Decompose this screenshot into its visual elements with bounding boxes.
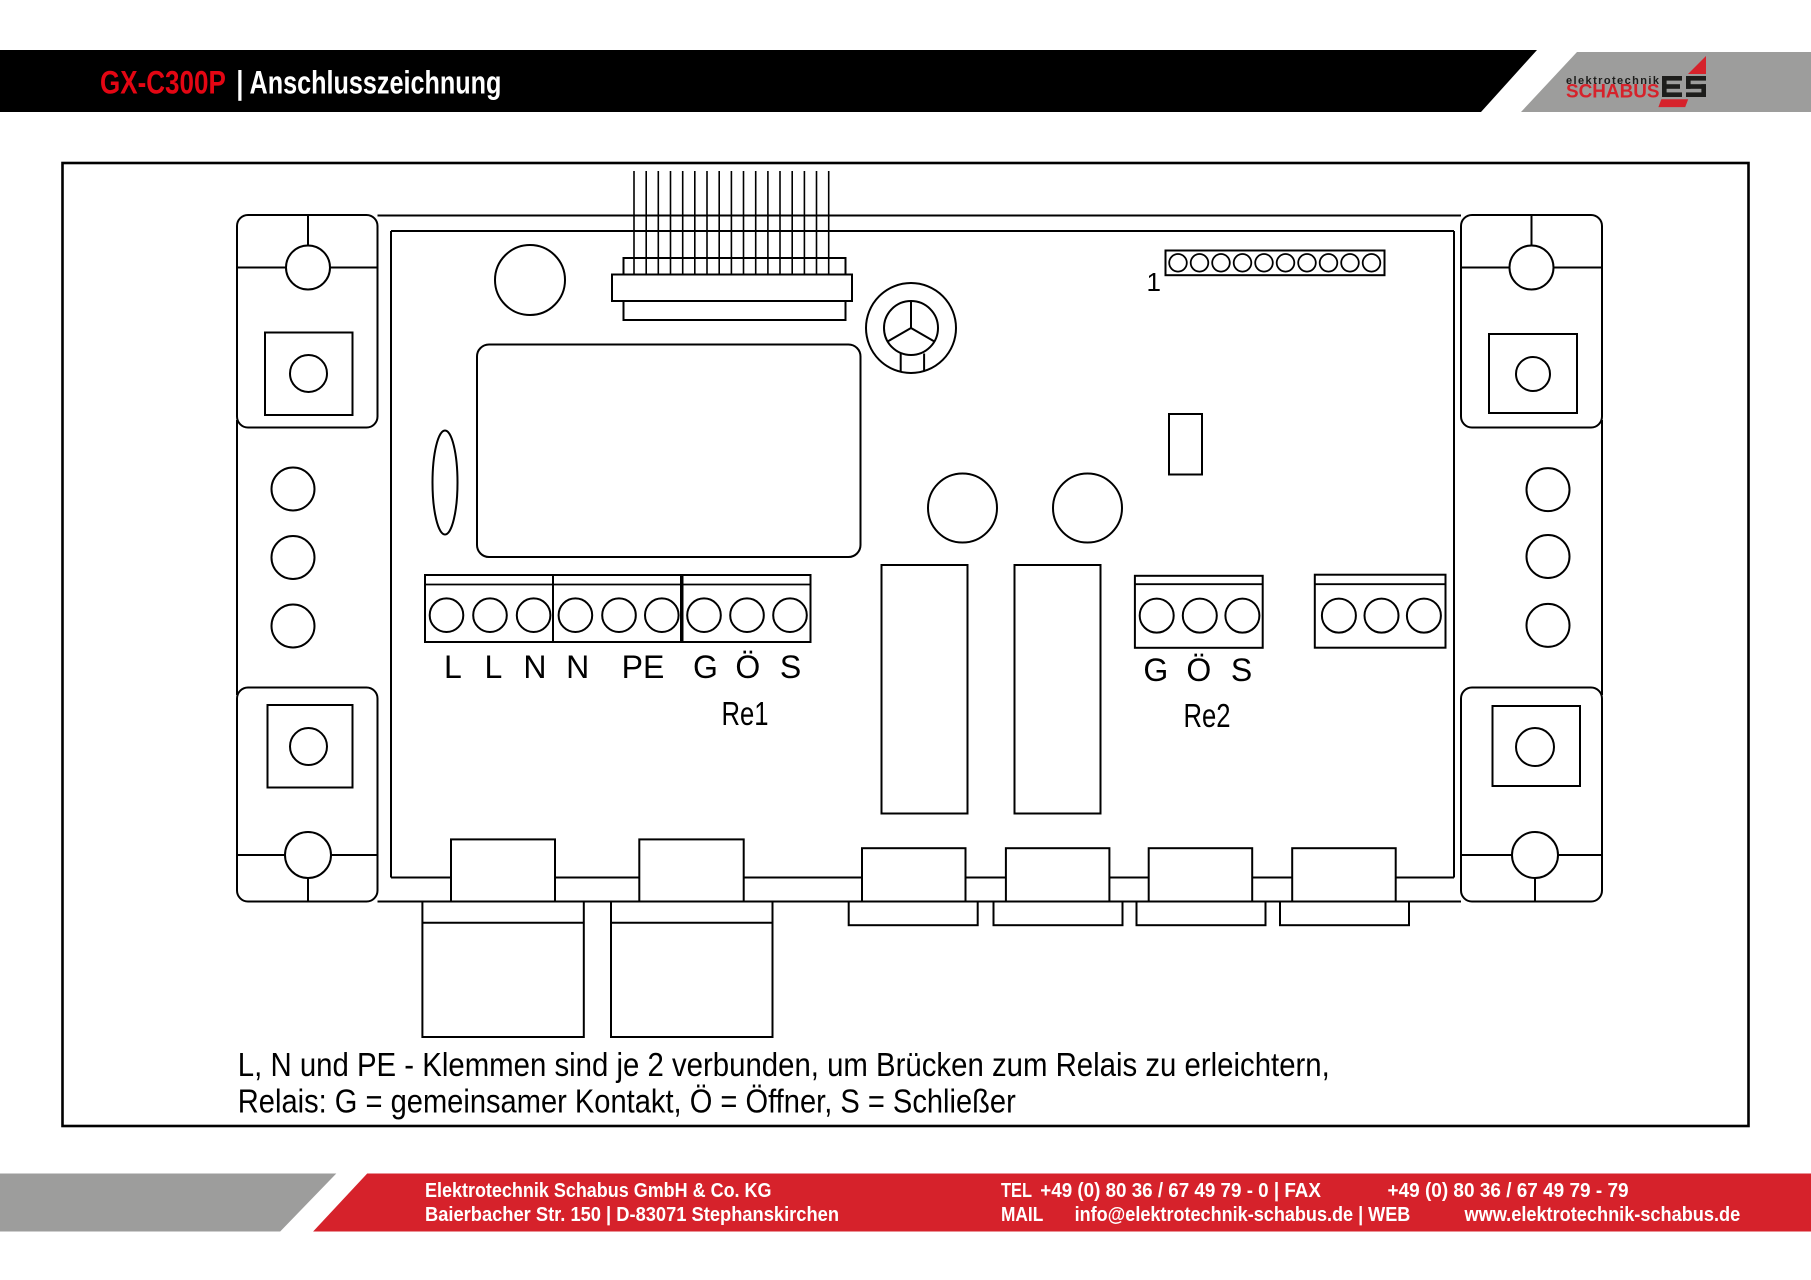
svg-text:MAIL: MAIL: [1001, 1203, 1043, 1226]
svg-text:S: S: [1231, 652, 1252, 688]
svg-text:L, N und PE - Klemmen sind je: L, N und PE - Klemmen sind je 2 verbunde…: [238, 1047, 1330, 1084]
svg-text:info@elektrotechnik-schabus.de: info@elektrotechnik-schabus.de | WEB: [1075, 1203, 1411, 1226]
svg-text:N: N: [566, 649, 589, 685]
svg-text:| Anschlusszeichnung: | Anschlusszeichnung: [236, 65, 501, 101]
svg-text:Relais: G = gemeinsamer Kontak: Relais: G = gemeinsamer Kontakt, Ö = Öff…: [238, 1084, 1016, 1121]
svg-text:Ö: Ö: [1186, 652, 1211, 688]
svg-text:SCHABUS: SCHABUS: [1566, 82, 1660, 103]
svg-text:G: G: [1143, 652, 1168, 688]
svg-text:+49 (0) 80 36 / 67 49 79 - 79: +49 (0) 80 36 / 67 49 79 - 79: [1388, 1179, 1629, 1202]
svg-text:1: 1: [1147, 267, 1161, 297]
svg-text:Ö: Ö: [735, 649, 760, 685]
svg-text:+49 (0) 80 36 / 67 49 79 - 0 |: +49 (0) 80 36 / 67 49 79 - 0 | FAX: [1040, 1179, 1321, 1202]
svg-text:Re2: Re2: [1184, 697, 1231, 734]
svg-text:N: N: [523, 649, 546, 685]
svg-text:G: G: [693, 649, 718, 685]
svg-text:L: L: [485, 649, 503, 685]
svg-text:PE: PE: [622, 649, 665, 685]
svg-text:Baierbacher Str. 150 | D-83071: Baierbacher Str. 150 | D-83071 Stephansk…: [425, 1203, 839, 1226]
svg-text:Elektrotechnik Schabus GmbH &: Elektrotechnik Schabus GmbH & Co. KG: [425, 1179, 772, 1202]
svg-text:L: L: [444, 649, 462, 685]
svg-text:www.elektrotechnik-schabus.de: www.elektrotechnik-schabus.de: [1464, 1203, 1741, 1226]
svg-text:Re1: Re1: [722, 695, 769, 732]
svg-text:TEL: TEL: [1001, 1179, 1032, 1202]
svg-text:GX-C300P: GX-C300P: [100, 65, 226, 101]
svg-text:S: S: [780, 649, 801, 685]
